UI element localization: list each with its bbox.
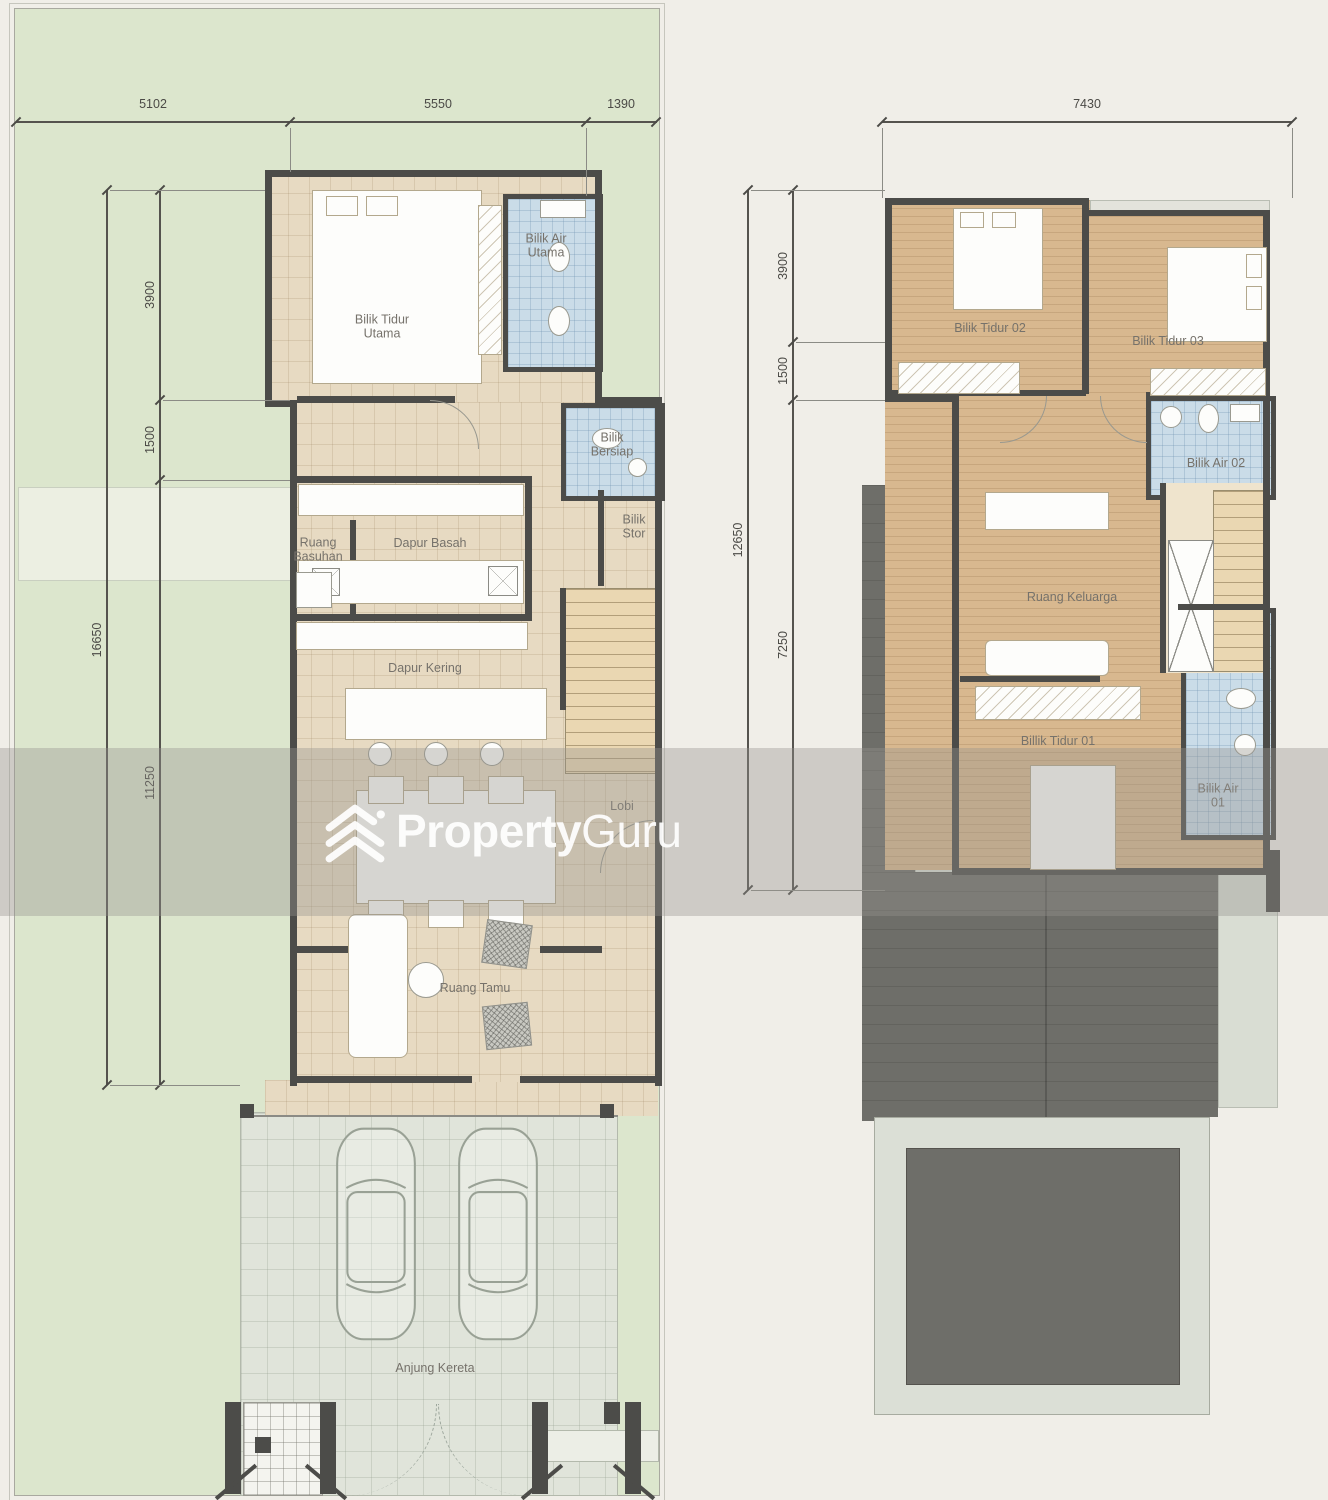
toilet-icon [1226, 688, 1256, 709]
extension-line [163, 480, 290, 481]
wall [290, 476, 532, 483]
wall [1086, 210, 1268, 216]
extension-line [110, 190, 265, 191]
extension-line [110, 1085, 240, 1086]
bilik-air-utama-room [503, 194, 603, 372]
room-label-bilik-tidur-03: Bilik Tidur 03 [1132, 334, 1204, 348]
pillow-icon [366, 196, 398, 216]
room-label-ruang-keluarga: Ruang Keluarga [1027, 590, 1117, 604]
extension-line [1292, 128, 1293, 198]
wall [598, 490, 604, 586]
room-label-bilik-stor: Bilik Stor [623, 513, 646, 542]
pillow-icon [1246, 254, 1262, 278]
wall [1160, 483, 1166, 673]
meter-box-icon [604, 1402, 620, 1424]
propertyguru-wordmark: PropertyGuru [396, 804, 681, 858]
wall [265, 170, 602, 177]
extension-line [882, 128, 883, 198]
dim-label: 12650 [731, 523, 745, 558]
dim-line-top-ground [16, 121, 657, 123]
extension-line [796, 342, 885, 343]
room-label-ruang-basuhan: Ruang Basuhan [293, 536, 342, 565]
extension-line [163, 400, 290, 401]
wall [525, 476, 532, 621]
room-label-bilik-air-utama: Bilik Air Utama [526, 232, 567, 261]
island-counter-icon [345, 688, 547, 740]
wall [595, 397, 661, 404]
basin-icon [1160, 406, 1182, 428]
dim-label: 3900 [143, 281, 157, 309]
wall [885, 198, 1085, 205]
floor-plan-page: 5102 5550 1390 16650 3900 1500 11250 Bil… [0, 0, 1328, 1500]
pillow-icon [992, 212, 1016, 228]
dim-label: 16650 [90, 623, 104, 658]
sink-icon [488, 566, 518, 596]
vanity-icon [540, 200, 586, 218]
room-label-ruang-tamu: Ruang Tamu [440, 981, 511, 995]
dim-line-left-inner-ground [159, 190, 161, 1085]
room-label-dapur-basah: Dapur Basah [394, 536, 467, 550]
pillow-icon [326, 196, 358, 216]
wall [265, 170, 272, 406]
wardrobe-icon [898, 362, 1020, 394]
pillow-icon [960, 212, 984, 228]
extension-line [796, 400, 885, 401]
wardrobe-icon [975, 686, 1141, 720]
wall [960, 676, 1100, 682]
wall [885, 395, 959, 402]
tv-console-icon [985, 492, 1109, 530]
dim-label: 3900 [776, 252, 790, 280]
toilet-icon [548, 306, 570, 336]
coffee-table-icon [408, 962, 444, 998]
gate-pad-right [541, 1430, 659, 1462]
first-staircase [1213, 490, 1268, 672]
dim-label: 1390 [607, 97, 635, 111]
dry-kitchen-counter-icon [296, 622, 528, 650]
car-icon [452, 1122, 544, 1348]
wordmark-guru: Guru [581, 805, 681, 857]
wall [1082, 348, 1089, 394]
wall [290, 400, 297, 1086]
washing-machine-icon [296, 572, 332, 608]
meter-box-icon [255, 1437, 271, 1453]
wardrobe-icon [478, 205, 502, 355]
dim-label: 1500 [143, 426, 157, 454]
dim-line-top-first [882, 121, 1292, 123]
wordmark-property: Property [396, 805, 581, 857]
drying-yard-pad [18, 487, 292, 581]
dim-label: 1500 [776, 357, 790, 385]
dim-label: 7430 [1073, 97, 1101, 111]
wall [540, 946, 602, 953]
awning-roof [906, 1148, 1180, 1385]
porch-post-right [600, 1104, 614, 1118]
armchair-icon [482, 1002, 532, 1051]
wall [560, 588, 566, 710]
dim-label: 5550 [424, 97, 452, 111]
room-label-bilik-air-02: Bilik Air 02 [1187, 456, 1245, 470]
dim-line-left-outer-ground [106, 190, 108, 1085]
room-label-anjung-kereta: Anjung Kereta [395, 1361, 474, 1375]
sofa-icon [348, 914, 408, 1058]
room-label-dapur-kering: Dapur Kering [388, 661, 462, 675]
room-label-bilik-bersiap: Bilik Bersiap [591, 431, 633, 460]
extension-line [290, 128, 291, 172]
vanity-icon [1230, 404, 1260, 422]
extension-line [751, 190, 885, 191]
dim-label: 5102 [139, 97, 167, 111]
extension-line [586, 128, 587, 196]
wall [520, 1076, 662, 1083]
basin-icon [628, 458, 647, 477]
wall [1082, 198, 1089, 348]
dim-label: 7250 [776, 631, 790, 659]
room-label-bilik-tidur-02: Bilik Tidur 02 [954, 321, 1026, 335]
car-icon [330, 1122, 422, 1348]
wall [290, 1076, 472, 1083]
porch-post-left [240, 1104, 254, 1118]
wall [885, 198, 892, 400]
master-bed-icon [312, 190, 482, 384]
wall [290, 614, 532, 621]
armchair-icon [481, 919, 533, 969]
wall [595, 170, 602, 402]
wardrobe-icon [1150, 368, 1266, 396]
carport-edge-line [240, 1115, 618, 1117]
ground-staircase [565, 588, 657, 774]
toilet-icon [1198, 404, 1219, 433]
wall [1178, 604, 1266, 610]
wall [655, 397, 662, 1086]
room-label-billik-tidur-01: Billik Tidur 01 [1021, 734, 1095, 748]
propertyguru-logo-icon [322, 800, 388, 866]
kitchen-counter-icon [298, 484, 524, 516]
room-label-bilik-tidur-utama: Bilik Tidur Utama [355, 313, 409, 342]
sofa-icon [985, 640, 1109, 676]
pillow-icon [1246, 286, 1262, 310]
